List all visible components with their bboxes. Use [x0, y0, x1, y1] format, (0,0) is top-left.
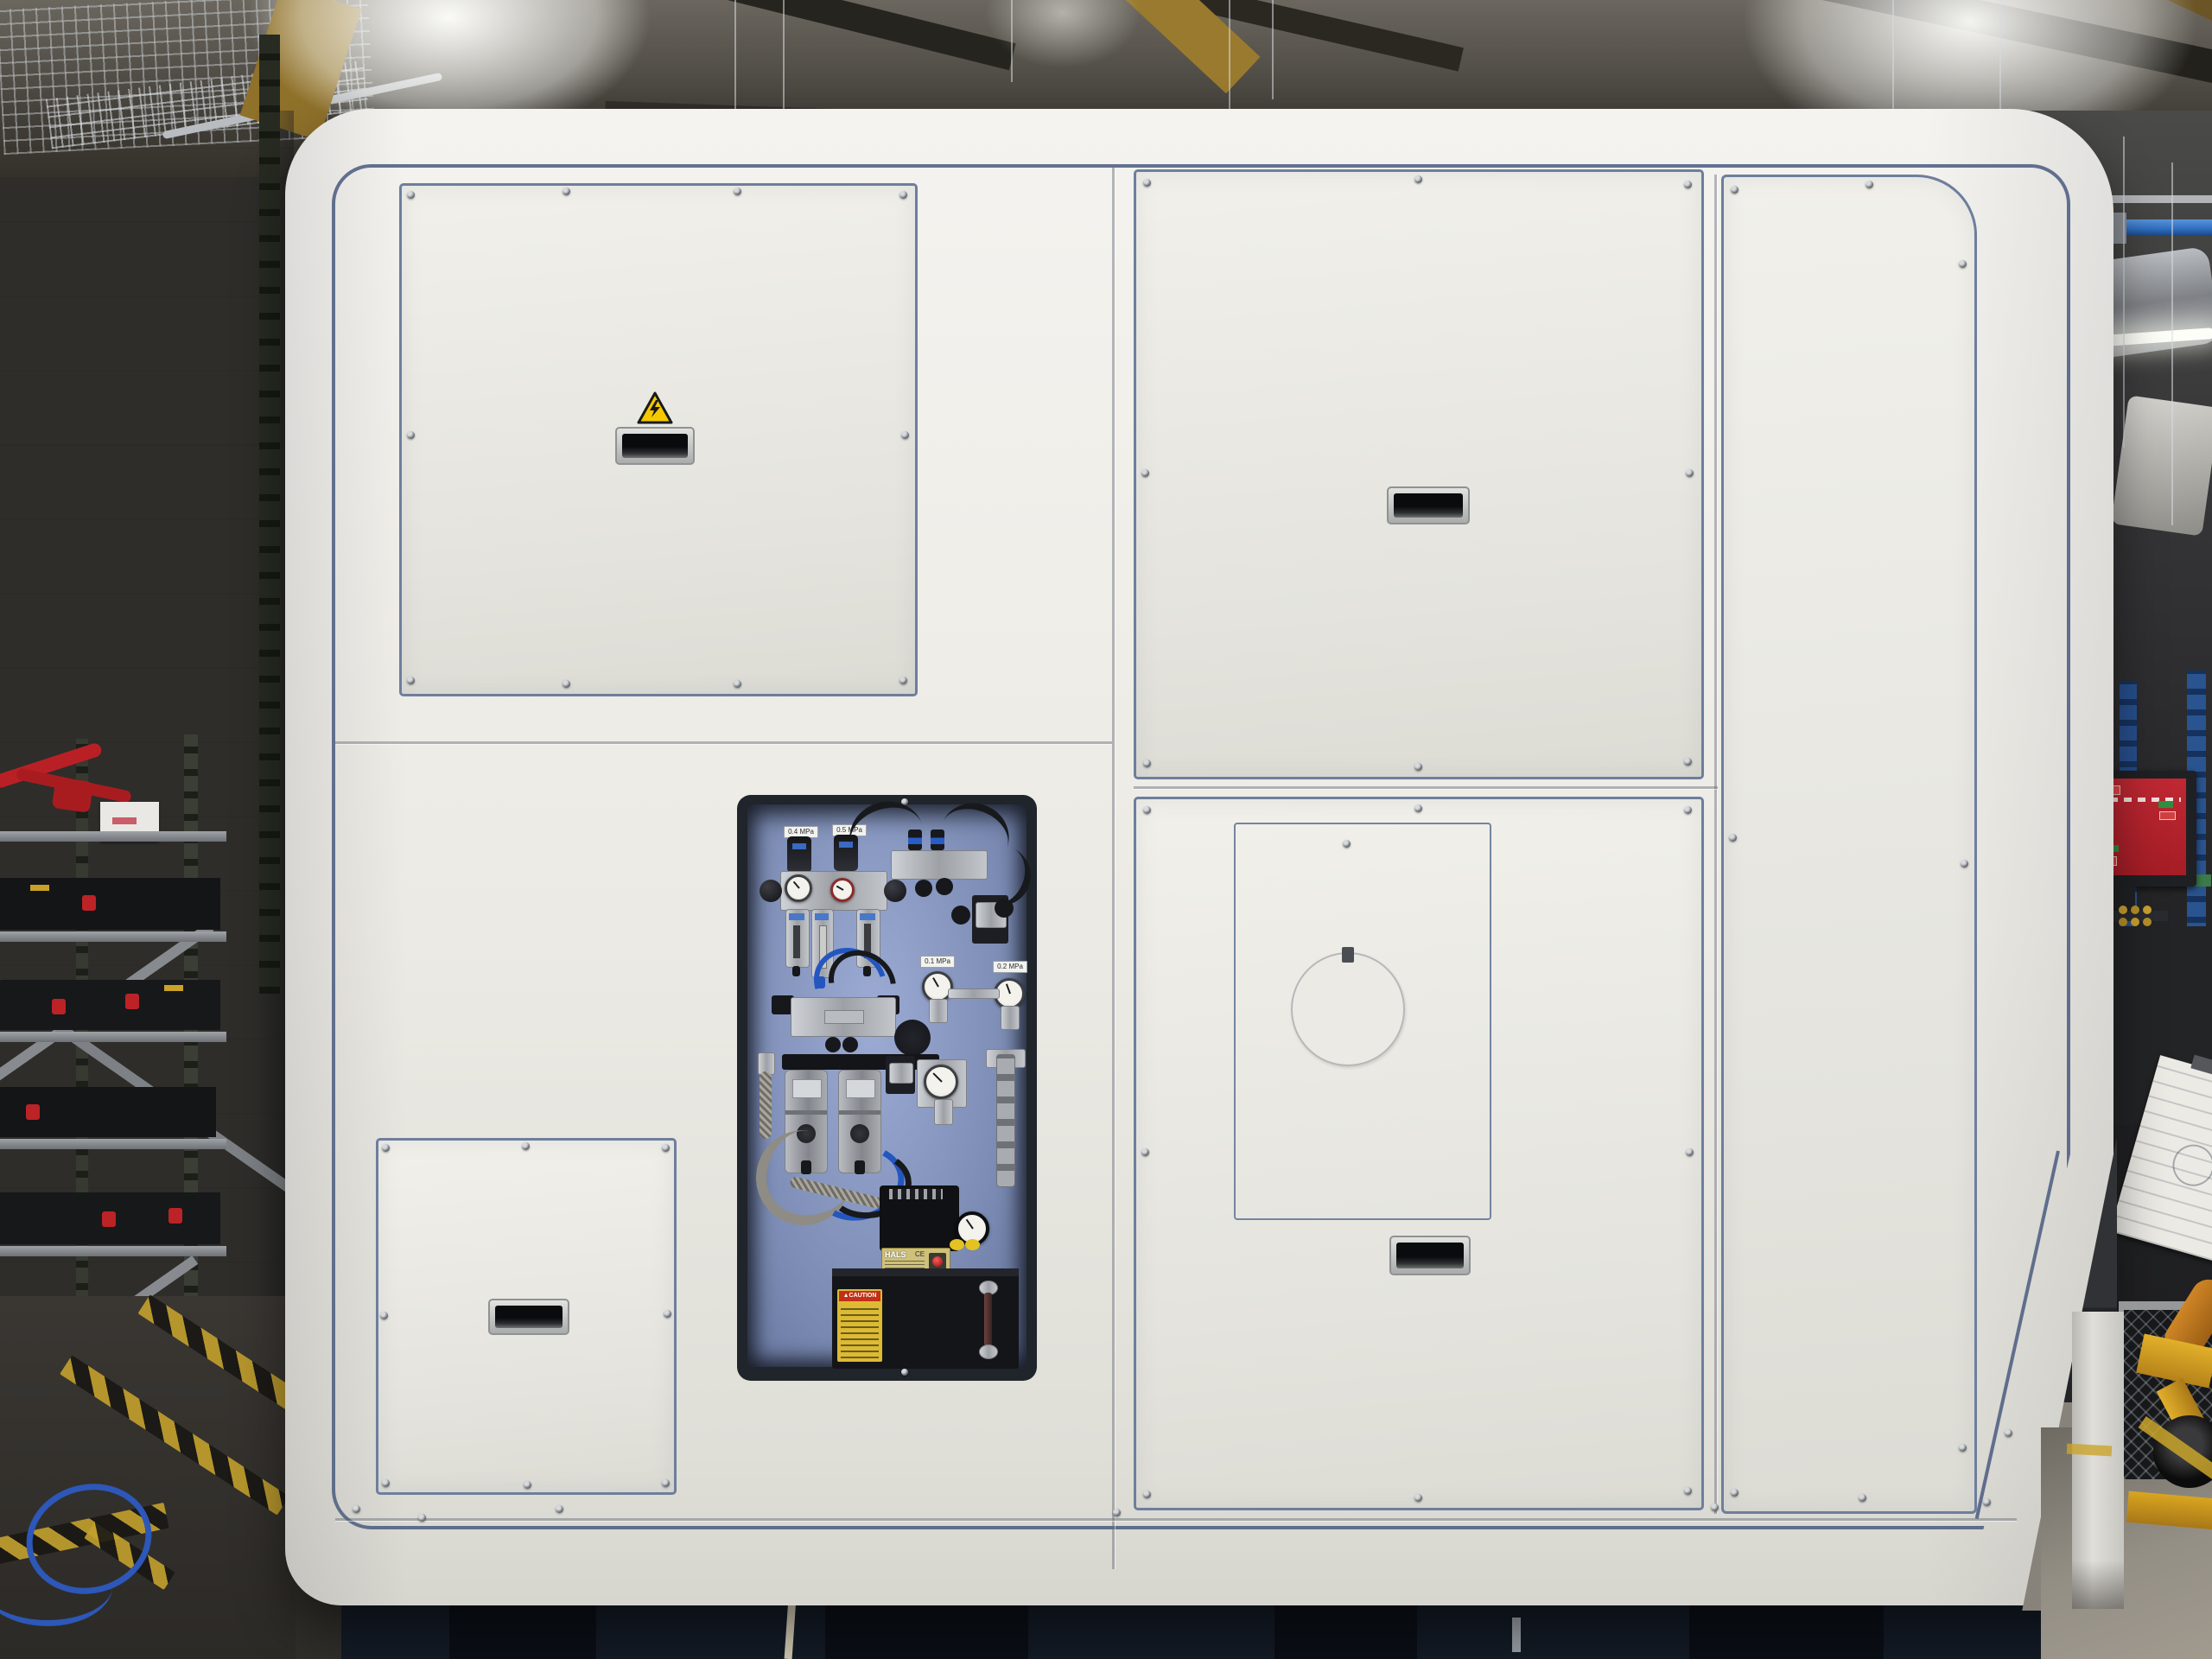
screw — [1414, 763, 1422, 771]
caution-sticker: ▲CAUTION — [837, 1289, 882, 1362]
screw — [1141, 469, 1149, 477]
screw — [901, 431, 909, 439]
access-panel-upper-right — [1134, 169, 1704, 779]
dangling-cable — [785, 1599, 797, 1659]
screw — [734, 680, 741, 688]
caution-header: ▲CAUTION — [839, 1291, 880, 1301]
red-clip — [52, 999, 66, 1014]
screw — [662, 1479, 670, 1487]
tray-row — [0, 1087, 216, 1137]
pneumatic-bay: 0.4 MPa 0.5 MPa — [737, 795, 1037, 1381]
screen-button-green — [2158, 801, 2173, 808]
screw — [353, 1505, 360, 1513]
screw — [1866, 181, 1873, 188]
post-grime — [2072, 1560, 2124, 1609]
screw — [563, 680, 570, 688]
red-clip — [102, 1211, 116, 1227]
screw — [1414, 804, 1422, 812]
sight-glass-tube — [984, 1293, 992, 1346]
shelf-board — [0, 1139, 226, 1149]
gauge-needle — [836, 886, 844, 891]
pressure-label: 0.1 MPa — [920, 956, 955, 968]
gauge-needle — [933, 1073, 943, 1083]
screw — [1959, 260, 1967, 268]
regulator-body — [1001, 1006, 1020, 1030]
screw — [662, 1144, 670, 1152]
warning-glyph-icon: ▲ — [843, 1293, 849, 1299]
gauge-needle — [932, 977, 939, 987]
handle-slot — [1394, 493, 1463, 518]
screw — [2005, 1429, 2012, 1437]
fitting-knob — [884, 880, 906, 902]
screw — [1684, 181, 1692, 188]
separator-port — [850, 1124, 869, 1143]
connecting-pipe — [948, 988, 1000, 999]
valve-label — [824, 1010, 864, 1024]
brass-fitting — [2143, 906, 2152, 914]
base-gap — [1689, 1599, 1884, 1659]
screen-button-red — [2159, 811, 2176, 820]
access-panel-lower-left — [376, 1138, 677, 1495]
screw — [556, 1505, 563, 1513]
drain-nub — [792, 966, 800, 976]
panel-seam-vertical — [1714, 175, 1717, 1514]
port-fitting — [825, 1037, 841, 1052]
recessed-handle — [615, 427, 695, 465]
screw — [734, 188, 741, 195]
brass-fitting — [2119, 918, 2127, 926]
pressure-gauge — [830, 878, 855, 902]
screw — [524, 1481, 531, 1489]
panel-seam-vertical — [1112, 168, 1115, 1569]
red-clip — [82, 895, 96, 911]
knockout-circle — [1291, 952, 1405, 1066]
screw — [407, 677, 415, 684]
tray-row — [0, 878, 220, 930]
separator-label-window — [792, 1079, 822, 1098]
gauge-needle — [966, 1219, 974, 1230]
leveling-foot — [1512, 1618, 1521, 1652]
screw — [382, 1144, 390, 1152]
oil-filler-cap — [950, 1239, 964, 1250]
gauge-needle — [1006, 983, 1011, 994]
screw — [1684, 806, 1692, 814]
screw — [664, 1310, 671, 1318]
ce-mark: CE — [915, 1250, 925, 1258]
shelf-brace — [0, 922, 213, 1237]
separator-label-window — [846, 1079, 875, 1098]
brass-fitting — [2131, 906, 2139, 914]
access-panel-lower-right — [1134, 797, 1704, 1510]
red-clip — [26, 1104, 40, 1120]
caution-title: CAUTION — [849, 1293, 877, 1299]
screw — [1343, 840, 1351, 848]
pump-top-label — [889, 1189, 943, 1199]
recessed-handle — [1387, 486, 1470, 524]
oil-filler-cap — [965, 1239, 980, 1250]
screw — [899, 191, 907, 199]
factory-scene: 0.4 MPa 0.5 MPa — [0, 0, 2212, 1659]
handle-slot — [1396, 1243, 1464, 1268]
machine-enclosure: 0.4 MPa 0.5 MPa — [285, 109, 2113, 1605]
base-gap — [1274, 1599, 1417, 1659]
box-logo — [112, 817, 137, 824]
solenoid-label-plate — [889, 1063, 913, 1084]
ceiling-light-flare — [959, 0, 1166, 86]
pressure-label: 0.2 MPa — [993, 961, 1027, 973]
port-fitting — [915, 880, 932, 897]
screw — [1143, 760, 1151, 767]
screw — [382, 1479, 390, 1487]
port-fitting — [936, 878, 953, 895]
panel-seam-horizontal — [1134, 786, 1718, 789]
port-fitting — [842, 1037, 858, 1052]
regulator-body — [934, 1099, 953, 1125]
brass-fitting — [2143, 918, 2152, 926]
hanging-wire — [2171, 162, 2173, 525]
screw — [522, 1142, 530, 1150]
hanging-wire — [1011, 0, 1013, 82]
pump-brand: HALS — [885, 1250, 906, 1259]
yellow-tag — [164, 985, 183, 991]
regulator-body — [929, 999, 948, 1023]
handle-slot — [495, 1306, 563, 1328]
screw — [1143, 806, 1151, 814]
panel-seam-horizontal — [335, 741, 1112, 744]
screw — [380, 1312, 388, 1319]
solenoid-valve-body — [791, 997, 896, 1037]
screw — [899, 677, 907, 684]
pressure-gauge — [924, 1065, 958, 1099]
yellow-tag — [30, 885, 49, 891]
hanging-wire — [1272, 0, 1274, 99]
screw — [1684, 758, 1692, 766]
screw — [418, 1514, 426, 1522]
sight-glass-bolt — [979, 1344, 998, 1359]
fitting-knob — [760, 880, 782, 902]
shelf-board — [0, 931, 226, 942]
screw — [1961, 860, 1968, 868]
pipe-column — [996, 1054, 1015, 1187]
screw — [1686, 469, 1694, 477]
hanging-wire — [1229, 0, 1230, 112]
sight-window — [793, 925, 800, 958]
hanging-wire — [1999, 0, 2001, 111]
port-fitting — [951, 906, 970, 925]
tray-row — [0, 980, 220, 1030]
screw — [1731, 1489, 1738, 1497]
shelf-board — [0, 1032, 226, 1042]
handle-slot — [622, 434, 688, 458]
screw — [1143, 1491, 1151, 1498]
filter-bowl — [785, 909, 810, 968]
red-clip — [168, 1208, 182, 1224]
separator-band — [839, 1110, 880, 1115]
bowl-band-blue — [860, 913, 875, 920]
electrical-hazard-icon — [637, 391, 673, 424]
wrapped-equipment — [2111, 395, 2212, 536]
brass-fitting — [2131, 918, 2139, 926]
screw — [1113, 1509, 1121, 1516]
screw — [1959, 1444, 1967, 1452]
screw — [407, 191, 415, 199]
screw — [1414, 1494, 1422, 1502]
bowl-band-blue — [815, 913, 829, 920]
separator-band — [785, 1110, 827, 1115]
solenoid-cap — [908, 829, 922, 850]
braided-hose — [760, 1071, 772, 1139]
access-panel-upper-left — [399, 183, 918, 696]
hanging-wire — [2123, 137, 2125, 448]
recessed-handle — [1389, 1236, 1471, 1275]
tray-row — [0, 1192, 220, 1244]
tank-top-lip — [832, 1268, 1019, 1276]
knob-band-blue — [792, 843, 806, 849]
caution-text-lines — [841, 1305, 879, 1358]
screw — [407, 431, 415, 439]
solenoid-cap — [931, 829, 944, 850]
screw — [1983, 1498, 1991, 1506]
mounting-bracket — [782, 1054, 939, 1070]
access-panel-right-narrow — [1721, 175, 1977, 1514]
shelf-board — [0, 831, 226, 842]
port-fitting — [995, 899, 1014, 918]
shelf-board — [0, 1246, 226, 1256]
recessed-handle — [488, 1299, 569, 1335]
screw — [1143, 179, 1151, 187]
bowl-band-blue — [789, 913, 804, 920]
base-gap — [825, 1599, 1028, 1659]
screw — [1684, 1487, 1692, 1495]
screw — [901, 1369, 908, 1376]
sub-panel — [1234, 823, 1491, 1220]
screw — [1729, 834, 1737, 842]
hanging-wire — [1892, 0, 1894, 112]
white-post — [2072, 1312, 2124, 1609]
screw — [1414, 175, 1422, 183]
base-gap — [449, 1599, 596, 1659]
screw — [1859, 1494, 1866, 1502]
regulator-knob — [787, 836, 811, 873]
screw — [1731, 186, 1738, 194]
brass-fitting — [2119, 906, 2127, 914]
solenoid-valve — [886, 1056, 915, 1094]
red-clip — [125, 994, 139, 1009]
gauge-needle — [793, 880, 800, 888]
pressure-gauge — [785, 874, 812, 902]
sketch-circle — [2168, 1140, 2212, 1191]
red-tool-body — [52, 777, 94, 813]
backplate-hole — [894, 1020, 931, 1056]
machine-base — [341, 1599, 2061, 1659]
panel-seam-horizontal — [335, 1518, 2017, 1521]
red-indicator-button — [932, 1256, 943, 1267]
screw — [1686, 1148, 1694, 1156]
screw — [1711, 1503, 1719, 1511]
knockout-clip — [1342, 947, 1354, 963]
screw — [563, 188, 570, 195]
screw — [1141, 1148, 1149, 1156]
